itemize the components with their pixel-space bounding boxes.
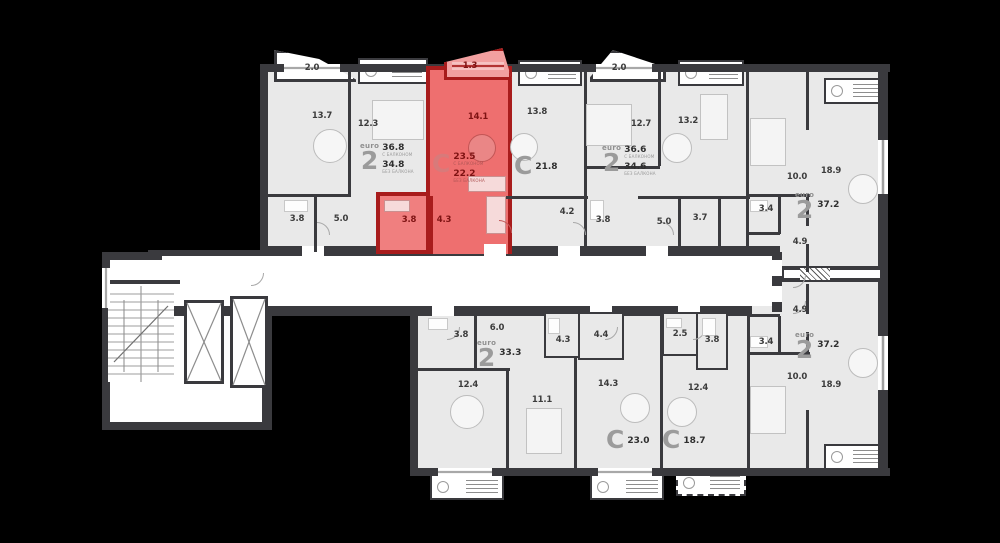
ac-unit-icon	[590, 474, 664, 500]
wall	[102, 252, 162, 260]
bed-icon	[372, 100, 424, 140]
room-area-label: 6.0	[490, 323, 504, 333]
room-area-label: 13.2	[678, 116, 698, 126]
bathtub-icon	[284, 200, 308, 212]
fan-icon	[437, 481, 449, 493]
apartment-label: euro 2 36.8 С БАЛКОНОМ 34.8 БЕЗ БАЛКОНА	[360, 143, 414, 177]
apartment-label-highlighted: С 23.5 С БАЛКОНОМ 22.2 БЕЗ БАЛКОНА	[432, 152, 485, 186]
bed-icon	[750, 386, 786, 434]
room-area-label: 3.8	[402, 215, 416, 225]
apartment-label: euro 2 36.6 С БАЛКОНОМ 34.6 БЕЗ БАЛКОНА	[602, 145, 656, 179]
room-area-label: 3.7	[693, 213, 707, 223]
wall	[410, 310, 418, 476]
window	[878, 336, 888, 390]
dining-table-icon	[450, 395, 484, 429]
area-note: С БАЛКОНОМ	[382, 153, 414, 158]
apartment-type: euro 2	[477, 340, 496, 368]
type-number: 2	[478, 347, 495, 368]
wall	[678, 198, 681, 252]
wall	[638, 196, 750, 199]
apartment-label: euro 2 37.2	[795, 332, 839, 360]
floor-plan: 13.7 12.3 3.8 5.0 2.0 14.1 3.8 4.3 1.3 1…	[0, 0, 1000, 543]
door-opening	[646, 246, 668, 256]
room-area-label: 3.8	[454, 330, 468, 340]
room-area-label: 10.0	[787, 372, 807, 382]
wall	[778, 316, 781, 354]
fan-icon	[683, 477, 695, 489]
elevator-icon	[230, 296, 268, 388]
apartment-label: С 23.0	[606, 428, 650, 452]
wall	[430, 196, 433, 254]
room-area-label: 13.8	[527, 107, 547, 117]
room-area-label: 5.0	[657, 217, 671, 227]
area-total: 18.7	[683, 436, 705, 446]
room-area-label: 3.4	[759, 204, 773, 214]
room-area-label: 4.4	[594, 330, 608, 340]
ac-unit-icon	[430, 474, 504, 500]
room-area-label: 3.8	[596, 215, 610, 225]
wall	[314, 196, 317, 252]
door-opening	[432, 306, 454, 316]
area-total: 23.0	[627, 436, 649, 446]
type-number: 2	[796, 339, 813, 360]
grille-icon	[466, 480, 498, 494]
room-area-label: 4.2	[560, 207, 574, 217]
ac-unit-icon	[824, 444, 886, 470]
sink-icon	[666, 318, 682, 328]
bed-icon	[586, 104, 632, 146]
grille-icon	[626, 480, 658, 494]
wall	[506, 196, 588, 199]
room-area-label: 14.3	[598, 379, 618, 389]
type-letter: С	[432, 152, 450, 176]
type-number: 2	[796, 199, 813, 220]
window	[102, 268, 110, 308]
wall	[260, 64, 268, 256]
wall	[748, 314, 780, 317]
type-number: 2	[603, 152, 620, 173]
fan-icon	[831, 85, 843, 97]
bed-icon	[750, 118, 786, 166]
area-note: БЕЗ БАЛКОНА	[382, 170, 414, 175]
apartment-label: С 21.8	[514, 154, 558, 178]
dining-table-icon	[667, 397, 697, 427]
window	[598, 468, 652, 476]
wall	[718, 198, 721, 252]
door-opening	[558, 246, 580, 256]
grille-icon	[853, 450, 880, 464]
balcony-area-label: 2.0	[612, 63, 626, 73]
apartment-type: С	[662, 428, 680, 452]
wall	[658, 72, 661, 166]
apartment-type: С	[514, 154, 532, 178]
bed-icon	[526, 408, 562, 454]
window	[878, 140, 888, 194]
elevator-icon	[184, 300, 224, 384]
area-total: 21.8	[535, 162, 557, 172]
room-area-label: 11.1	[532, 395, 552, 405]
wall	[806, 72, 809, 130]
room-area-label: 10.0	[787, 172, 807, 182]
room-area-label: 18.9	[821, 166, 841, 176]
apartment-type: euro 2	[795, 192, 814, 220]
wall	[104, 280, 180, 284]
dining-table-icon	[662, 133, 692, 163]
room-area-label: 3.8	[705, 335, 719, 345]
room-area-label: 12.3	[358, 119, 378, 129]
window	[438, 468, 492, 476]
dining-table-icon	[848, 348, 878, 378]
room-area-label: 4.9	[793, 237, 807, 247]
wall	[806, 244, 809, 272]
wall	[266, 246, 780, 256]
bathtub-icon	[384, 200, 410, 212]
apartment-type: euro 2	[602, 145, 621, 173]
fan-icon	[597, 481, 609, 493]
wall	[148, 250, 270, 256]
room-area-label: 5.0	[334, 214, 348, 224]
area-total: 37.2	[817, 200, 839, 210]
room-area-label: 18.9	[821, 380, 841, 390]
wall	[268, 194, 351, 197]
fan-icon	[831, 451, 843, 463]
wall	[744, 468, 890, 476]
balcony-area-label: 1.3	[463, 61, 477, 71]
area-total: 37.2	[817, 340, 839, 350]
grille-icon	[853, 84, 880, 98]
apartment-label: euro 2 37.2	[795, 192, 839, 220]
room-area-label: 4.3	[437, 215, 451, 225]
door-opening	[484, 244, 506, 256]
toilet-icon	[548, 318, 560, 334]
apartment-type: С	[606, 428, 624, 452]
wall	[506, 368, 509, 472]
room-area-label: 12.4	[458, 380, 478, 390]
wall	[748, 232, 780, 235]
wall	[348, 72, 351, 196]
wall	[414, 368, 510, 371]
window	[452, 62, 504, 70]
grille-icon	[710, 476, 740, 490]
dining-table-icon	[620, 393, 650, 423]
room-area-label: 3.8	[290, 214, 304, 224]
type-letter: С	[662, 428, 680, 452]
room-area-label: 14.1	[468, 112, 488, 122]
apartment-label: euro 2 33.3	[477, 340, 521, 368]
dining-table-icon	[848, 174, 878, 204]
area-note: БЕЗ БАЛКОНА	[624, 172, 656, 177]
area-note: С БАЛКОНОМ	[453, 162, 485, 167]
area-note: БЕЗ БАЛКОНА	[453, 179, 485, 184]
type-letter: С	[606, 428, 624, 452]
door-opening	[772, 286, 782, 302]
area-note: С БАЛКОНОМ	[624, 155, 656, 160]
room-area-label: 2.5	[673, 329, 687, 339]
bed-icon	[700, 94, 728, 140]
apartment-label: С 18.7	[662, 428, 706, 452]
door-opening	[302, 246, 324, 256]
balcony-area-label: 2.0	[305, 63, 319, 73]
bathtub-icon	[428, 318, 448, 330]
room-area-label: 4.9	[793, 305, 807, 315]
room-area-label: 12.4	[688, 383, 708, 393]
area-total: 33.3	[499, 348, 521, 358]
apartment-type: euro 2	[360, 143, 379, 171]
room-area-label: 13.7	[312, 111, 332, 121]
room-area-label: 12.7	[631, 119, 651, 129]
ac-unit-icon	[824, 78, 886, 104]
dining-table-icon	[313, 129, 347, 163]
stairs-icon	[108, 286, 174, 382]
type-letter: С	[514, 154, 532, 178]
room-area-label: 3.4	[759, 337, 773, 347]
type-number: 2	[361, 150, 378, 171]
wall	[778, 196, 781, 234]
apartment-type: С	[432, 152, 450, 176]
apartment-type: euro 2	[795, 332, 814, 360]
room-area-label: 4.3	[556, 335, 570, 345]
wall	[806, 410, 809, 470]
door-opening	[772, 260, 782, 276]
toilet-icon	[702, 318, 716, 336]
wall	[744, 64, 890, 72]
wall	[102, 422, 272, 430]
